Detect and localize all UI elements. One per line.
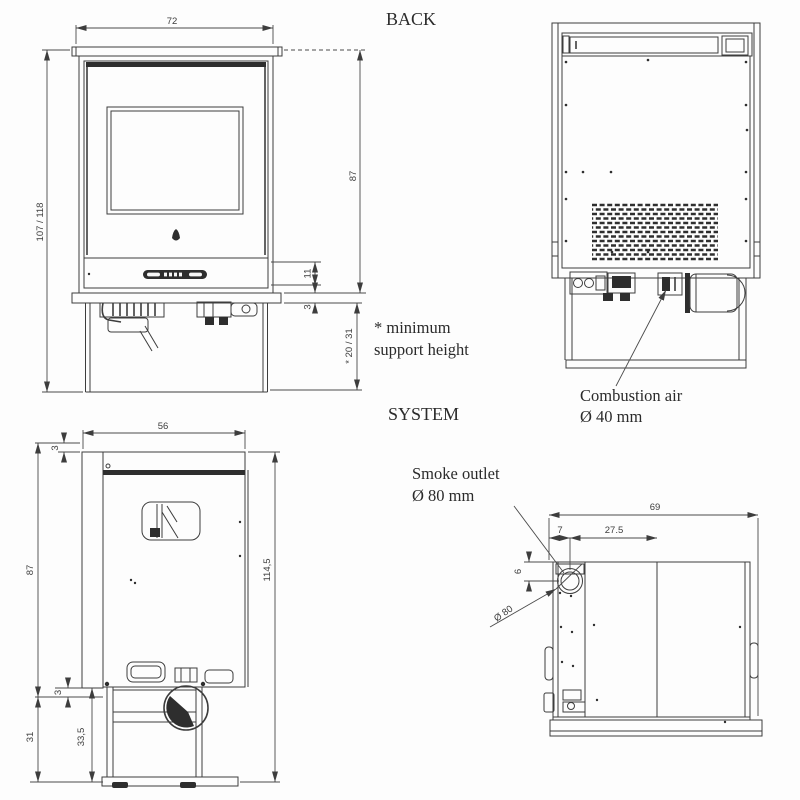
combustion-air-label: Combustion air: [580, 386, 683, 405]
dim-front-panel-height: 11: [303, 269, 314, 279]
side-body: [103, 452, 245, 687]
top-left-handle: [545, 647, 553, 680]
dim-outlet-center-offset: 27.5: [605, 525, 624, 536]
back-view-title: BACK: [386, 9, 436, 29]
dim-side-body-height: 87: [25, 565, 36, 576]
dim-side-support-height: 31: [25, 732, 36, 743]
back-combustion-air-inlet: [658, 273, 682, 295]
top-rear-component: [563, 690, 585, 712]
system-view-title: SYSTEM: [388, 404, 459, 424]
back-fan-motor: [685, 273, 745, 313]
back-view: [552, 23, 760, 368]
side-dimensions: 56 3 87 114,5 3 31 33,5: [25, 421, 280, 782]
top-body-outline: [553, 562, 750, 717]
dim-side-total-height: 114,5: [262, 558, 273, 581]
front-door-frame: [84, 61, 268, 288]
dim-front-total-height: 107 / 118: [35, 203, 46, 242]
side-bottom-fittings: [105, 662, 233, 686]
smoke-outlet-label: Smoke outlet: [412, 464, 500, 483]
combustion-air-diameter: Ø 40 mm: [580, 407, 643, 426]
dim-side-top-gap: 3: [50, 445, 61, 450]
support-note-line2: support height: [374, 340, 469, 359]
stove-dimension-diagram: 72 107 / 118 87 11 3 * 20 / 31 BACK: [0, 0, 800, 800]
back-panel: [562, 56, 750, 268]
brand-flame-icon: [172, 229, 180, 241]
front-body: [79, 56, 273, 293]
top-screw-dots: [559, 592, 741, 723]
front-under-vent: [100, 303, 164, 351]
technical-drawing-page: 72 107 / 118 87 11 3 * 20 / 31 BACK: [0, 0, 800, 800]
back-pedestal: [565, 278, 746, 368]
smoke-outlet-annotation: Smoke outlet Ø 80 mm: [412, 464, 564, 573]
combustion-air-annotation: Combustion air Ø 40 mm: [580, 290, 683, 426]
dim-front-support-height: * 20 / 31: [344, 328, 355, 363]
back-top-channel: [562, 33, 752, 56]
dim-side-rear-gap: 3: [53, 690, 64, 695]
back-power-socket: [603, 273, 635, 301]
back-terminal-block: [570, 272, 607, 294]
dim-front-plinth: 3: [303, 304, 314, 309]
side-handle-cutout: [142, 502, 200, 540]
front-control-panel: [143, 270, 207, 279]
side-back-slab: [82, 452, 103, 688]
dim-front-body-height: 87: [348, 171, 359, 182]
dim-top-width: 69: [650, 502, 661, 513]
side-view: [82, 452, 248, 788]
front-dimensions: 72 107 / 118 87 11 3 * 20 / 31: [35, 16, 366, 392]
front-window: [107, 107, 243, 214]
front-base-plate: [72, 293, 281, 303]
front-view: [72, 47, 282, 392]
dim-outlet-edge-offset: 7: [557, 525, 562, 536]
support-note: * minimum support height: [374, 318, 469, 359]
front-top-cap: [72, 47, 282, 56]
dim-side-support-height-alt: 33,5: [76, 728, 87, 747]
top-dimensions: 69 7 27.5 6 Ø 80: [490, 502, 758, 716]
dim-outlet-top-offset: 6: [513, 569, 524, 574]
support-note-line1: * minimum: [374, 318, 451, 337]
dim-side-depth: 56: [158, 421, 169, 432]
top-view: [544, 562, 762, 736]
top-base-plate: [550, 720, 762, 736]
front-under-components: [197, 302, 257, 325]
smoke-outlet-diameter: Ø 80 mm: [412, 486, 475, 505]
dim-front-width: 72: [167, 16, 178, 27]
back-vent-grille: [592, 205, 718, 259]
side-undercarriage: [102, 686, 238, 788]
dim-outlet-diameter: Ø 80: [492, 604, 515, 625]
top-right-handle: [750, 643, 758, 678]
